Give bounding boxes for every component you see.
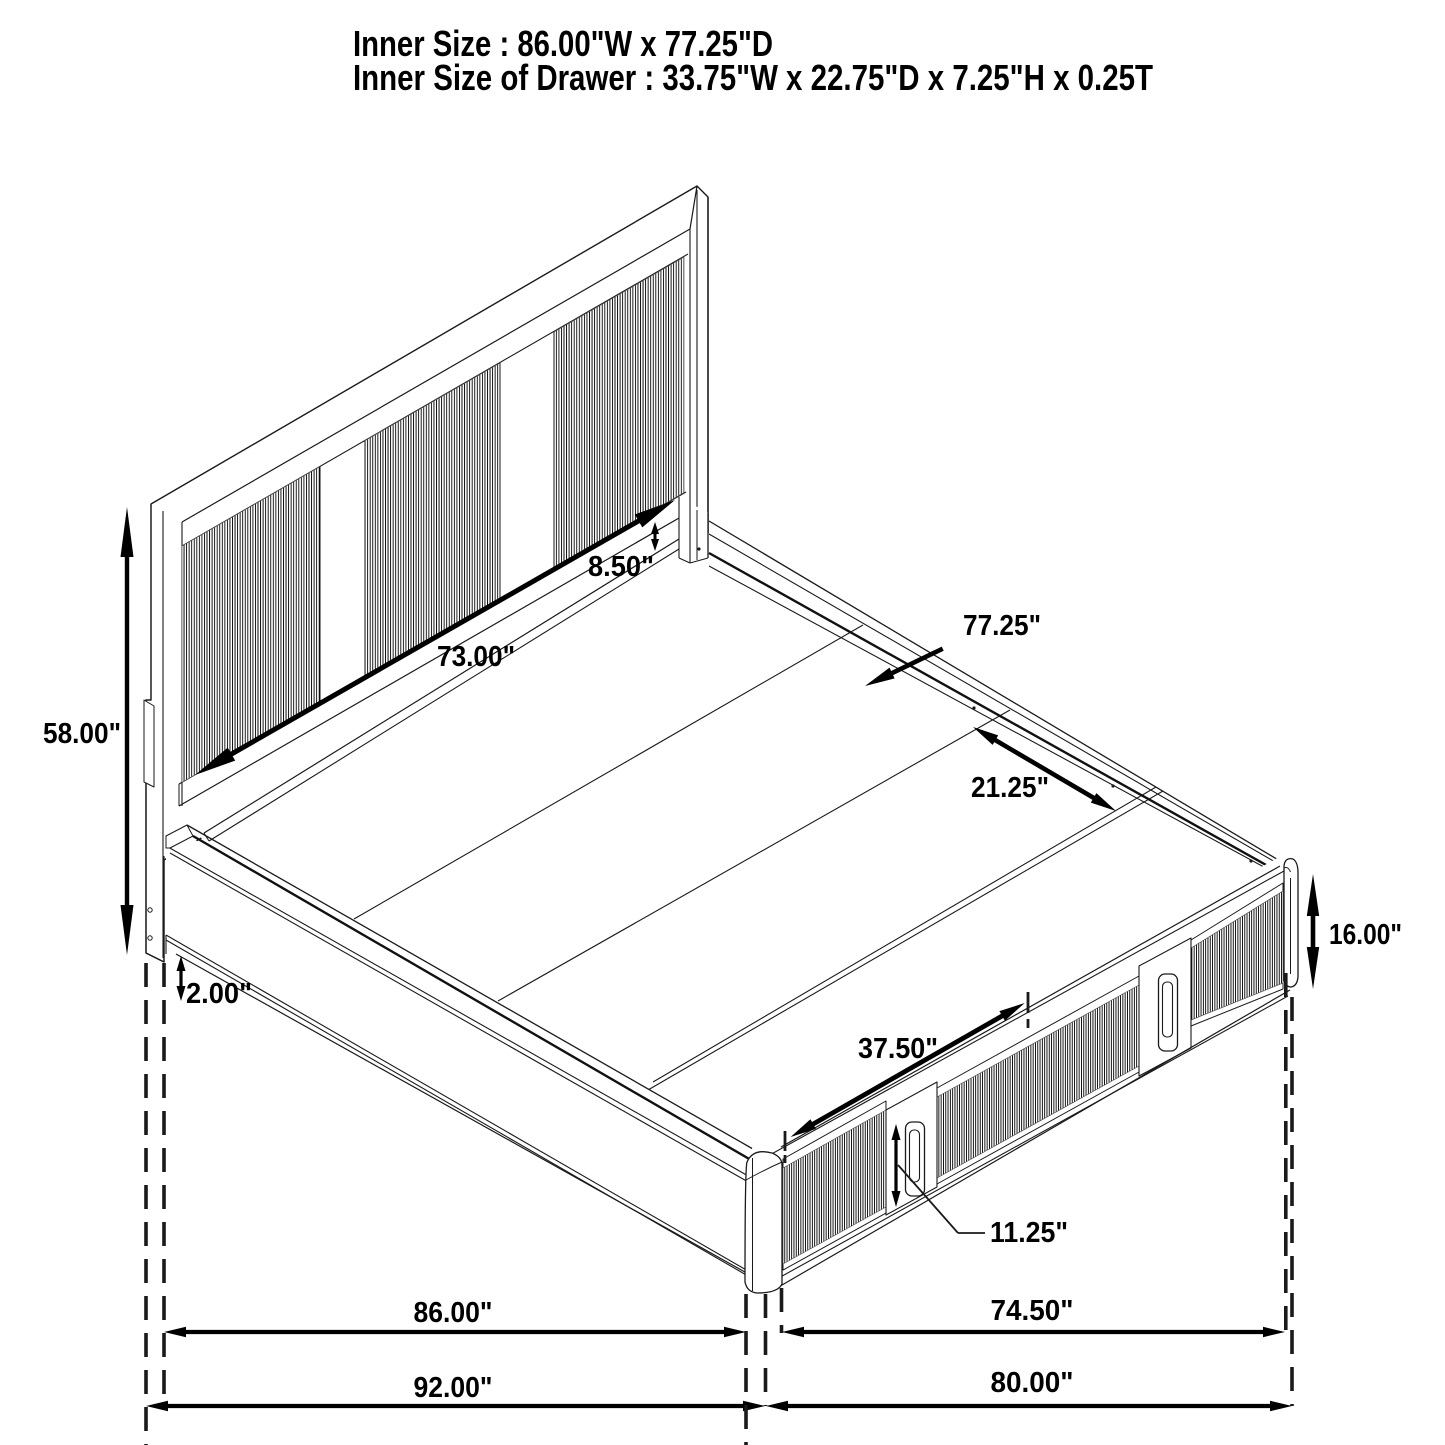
- svg-text:8.50": 8.50": [588, 551, 654, 583]
- svg-text:11.25": 11.25": [990, 1217, 1068, 1249]
- svg-text:37.50": 37.50": [858, 1033, 938, 1065]
- svg-text:16.00": 16.00": [1329, 919, 1402, 951]
- svg-text:73.00": 73.00": [437, 641, 515, 673]
- svg-text:Inner Size of Drawer : 33.75"W: Inner Size of Drawer : 33.75"W x 22.75"D…: [353, 57, 1153, 98]
- svg-text:86.00": 86.00": [414, 1297, 493, 1329]
- svg-text:80.00": 80.00": [991, 1367, 1074, 1399]
- svg-text:77.25": 77.25": [963, 610, 1041, 642]
- svg-text:92.00": 92.00": [414, 1372, 493, 1404]
- svg-text:58.00": 58.00": [43, 718, 121, 750]
- svg-text:2.00": 2.00": [186, 978, 252, 1010]
- svg-text:21.25": 21.25": [971, 772, 1049, 804]
- svg-text:74.50": 74.50": [991, 1295, 1074, 1327]
